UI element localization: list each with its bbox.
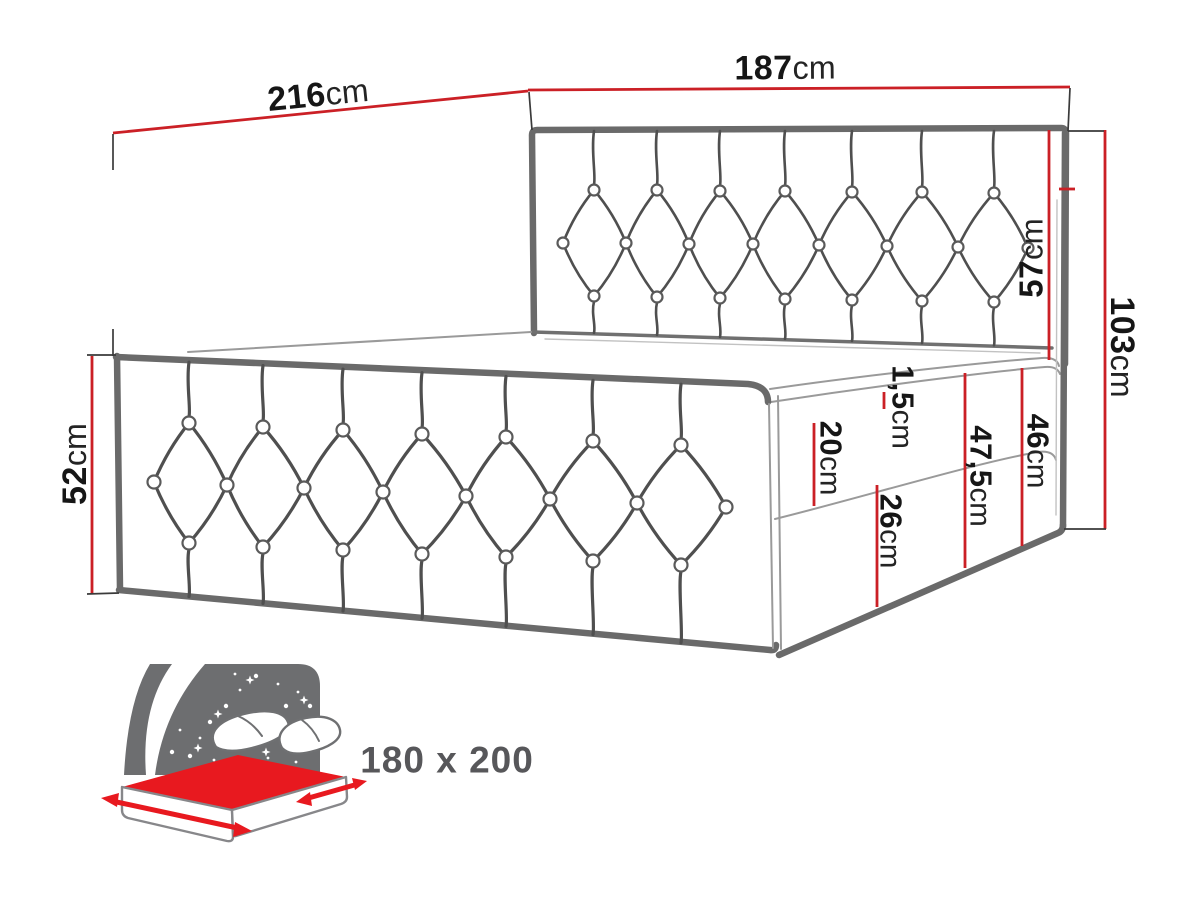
tick-52-bottom: [87, 593, 119, 594]
bed-size-icon: [101, 664, 367, 841]
dim-label-20: 20cm: [815, 421, 846, 496]
icon-width-arrow-head-left: [101, 793, 119, 807]
footboard-right-edge-outer: [778, 396, 781, 649]
dim-value: 216: [266, 75, 328, 119]
dim-label-52: 52cm: [58, 423, 92, 505]
dimension-line-187: [528, 87, 1070, 90]
mattress-left-edge: [188, 332, 531, 352]
dim-label-57: 57cm: [1014, 218, 1047, 298]
dim-unit: cm: [57, 423, 93, 466]
dim-unit: cm: [1021, 449, 1054, 488]
bed-right-edge: [1063, 133, 1065, 527]
headboard-panel: [532, 128, 1066, 364]
dim-label-187: 187cm: [734, 51, 836, 86]
dim-value: 20: [814, 421, 849, 456]
dim-label-103: 103cm: [1105, 296, 1139, 397]
dim-unit: cm: [874, 529, 907, 568]
dim-unit: cm: [814, 456, 847, 495]
bed-bottom-right-edge: [779, 525, 1063, 655]
dim-value: 47,5: [964, 425, 999, 487]
dim-unit: cm: [964, 488, 997, 527]
dim-unit: cm: [792, 50, 835, 86]
bed-dimensions-diagram: 216cm 187cm 57cm 103cm 52cm 1,5cm 20cm 4…: [0, 0, 1200, 900]
dim-unit: cm: [886, 410, 919, 449]
dim-value: 103: [1103, 296, 1141, 354]
tick-216-187-join: [529, 92, 532, 130]
dim-unit: cm: [324, 72, 370, 112]
dim-unit: cm: [1014, 218, 1049, 260]
footboard-left-edge: [117, 356, 120, 589]
dim-value: 187: [734, 49, 793, 88]
dim-value: 46: [1021, 414, 1056, 449]
dim-unit: cm: [1104, 355, 1140, 398]
size-label: 180 x 200: [360, 742, 534, 779]
dim-value: 57: [1012, 260, 1049, 298]
dim-label-47-5: 47,5cm: [965, 425, 996, 527]
dim-label-1-5: 1,5cm: [887, 365, 918, 449]
dim-label-26: 26cm: [875, 494, 906, 569]
tick-187-right: [1068, 88, 1070, 131]
dim-value: 52: [56, 466, 94, 505]
dim-label-46: 46cm: [1022, 414, 1053, 489]
dim-value: 26: [874, 494, 909, 529]
dim-value: 1,5: [886, 365, 921, 410]
